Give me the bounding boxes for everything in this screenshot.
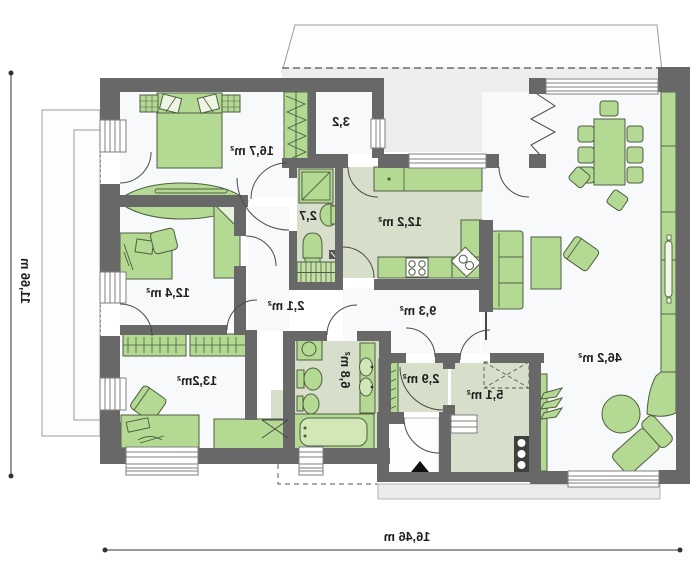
svg-text:2,9 m²: 2,9 m²: [403, 372, 440, 386]
svg-text:12,4 m²: 12,4 m²: [146, 286, 190, 300]
svg-text:2,7: 2,7: [299, 209, 317, 223]
svg-text:6,8 m²: 6,8 m²: [338, 352, 352, 389]
svg-text:5,1 m²: 5,1 m²: [467, 388, 504, 402]
svg-text:2,1 m²: 2,1 m²: [268, 299, 305, 313]
svg-text:11,66 m: 11,66 m: [18, 258, 32, 304]
svg-text:3,2: 3,2: [332, 115, 350, 129]
svg-text:13,2m²: 13,2m²: [177, 374, 217, 388]
svg-text:16,7 m²: 16,7 m²: [230, 144, 274, 158]
svg-text:9,3 m²: 9,3 m²: [400, 304, 437, 318]
svg-text:12,2 m²: 12,2 m²: [378, 215, 422, 229]
svg-text:16,46 m: 16,46 m: [384, 530, 431, 544]
svg-text:46,2 m²: 46,2 m²: [578, 351, 622, 365]
